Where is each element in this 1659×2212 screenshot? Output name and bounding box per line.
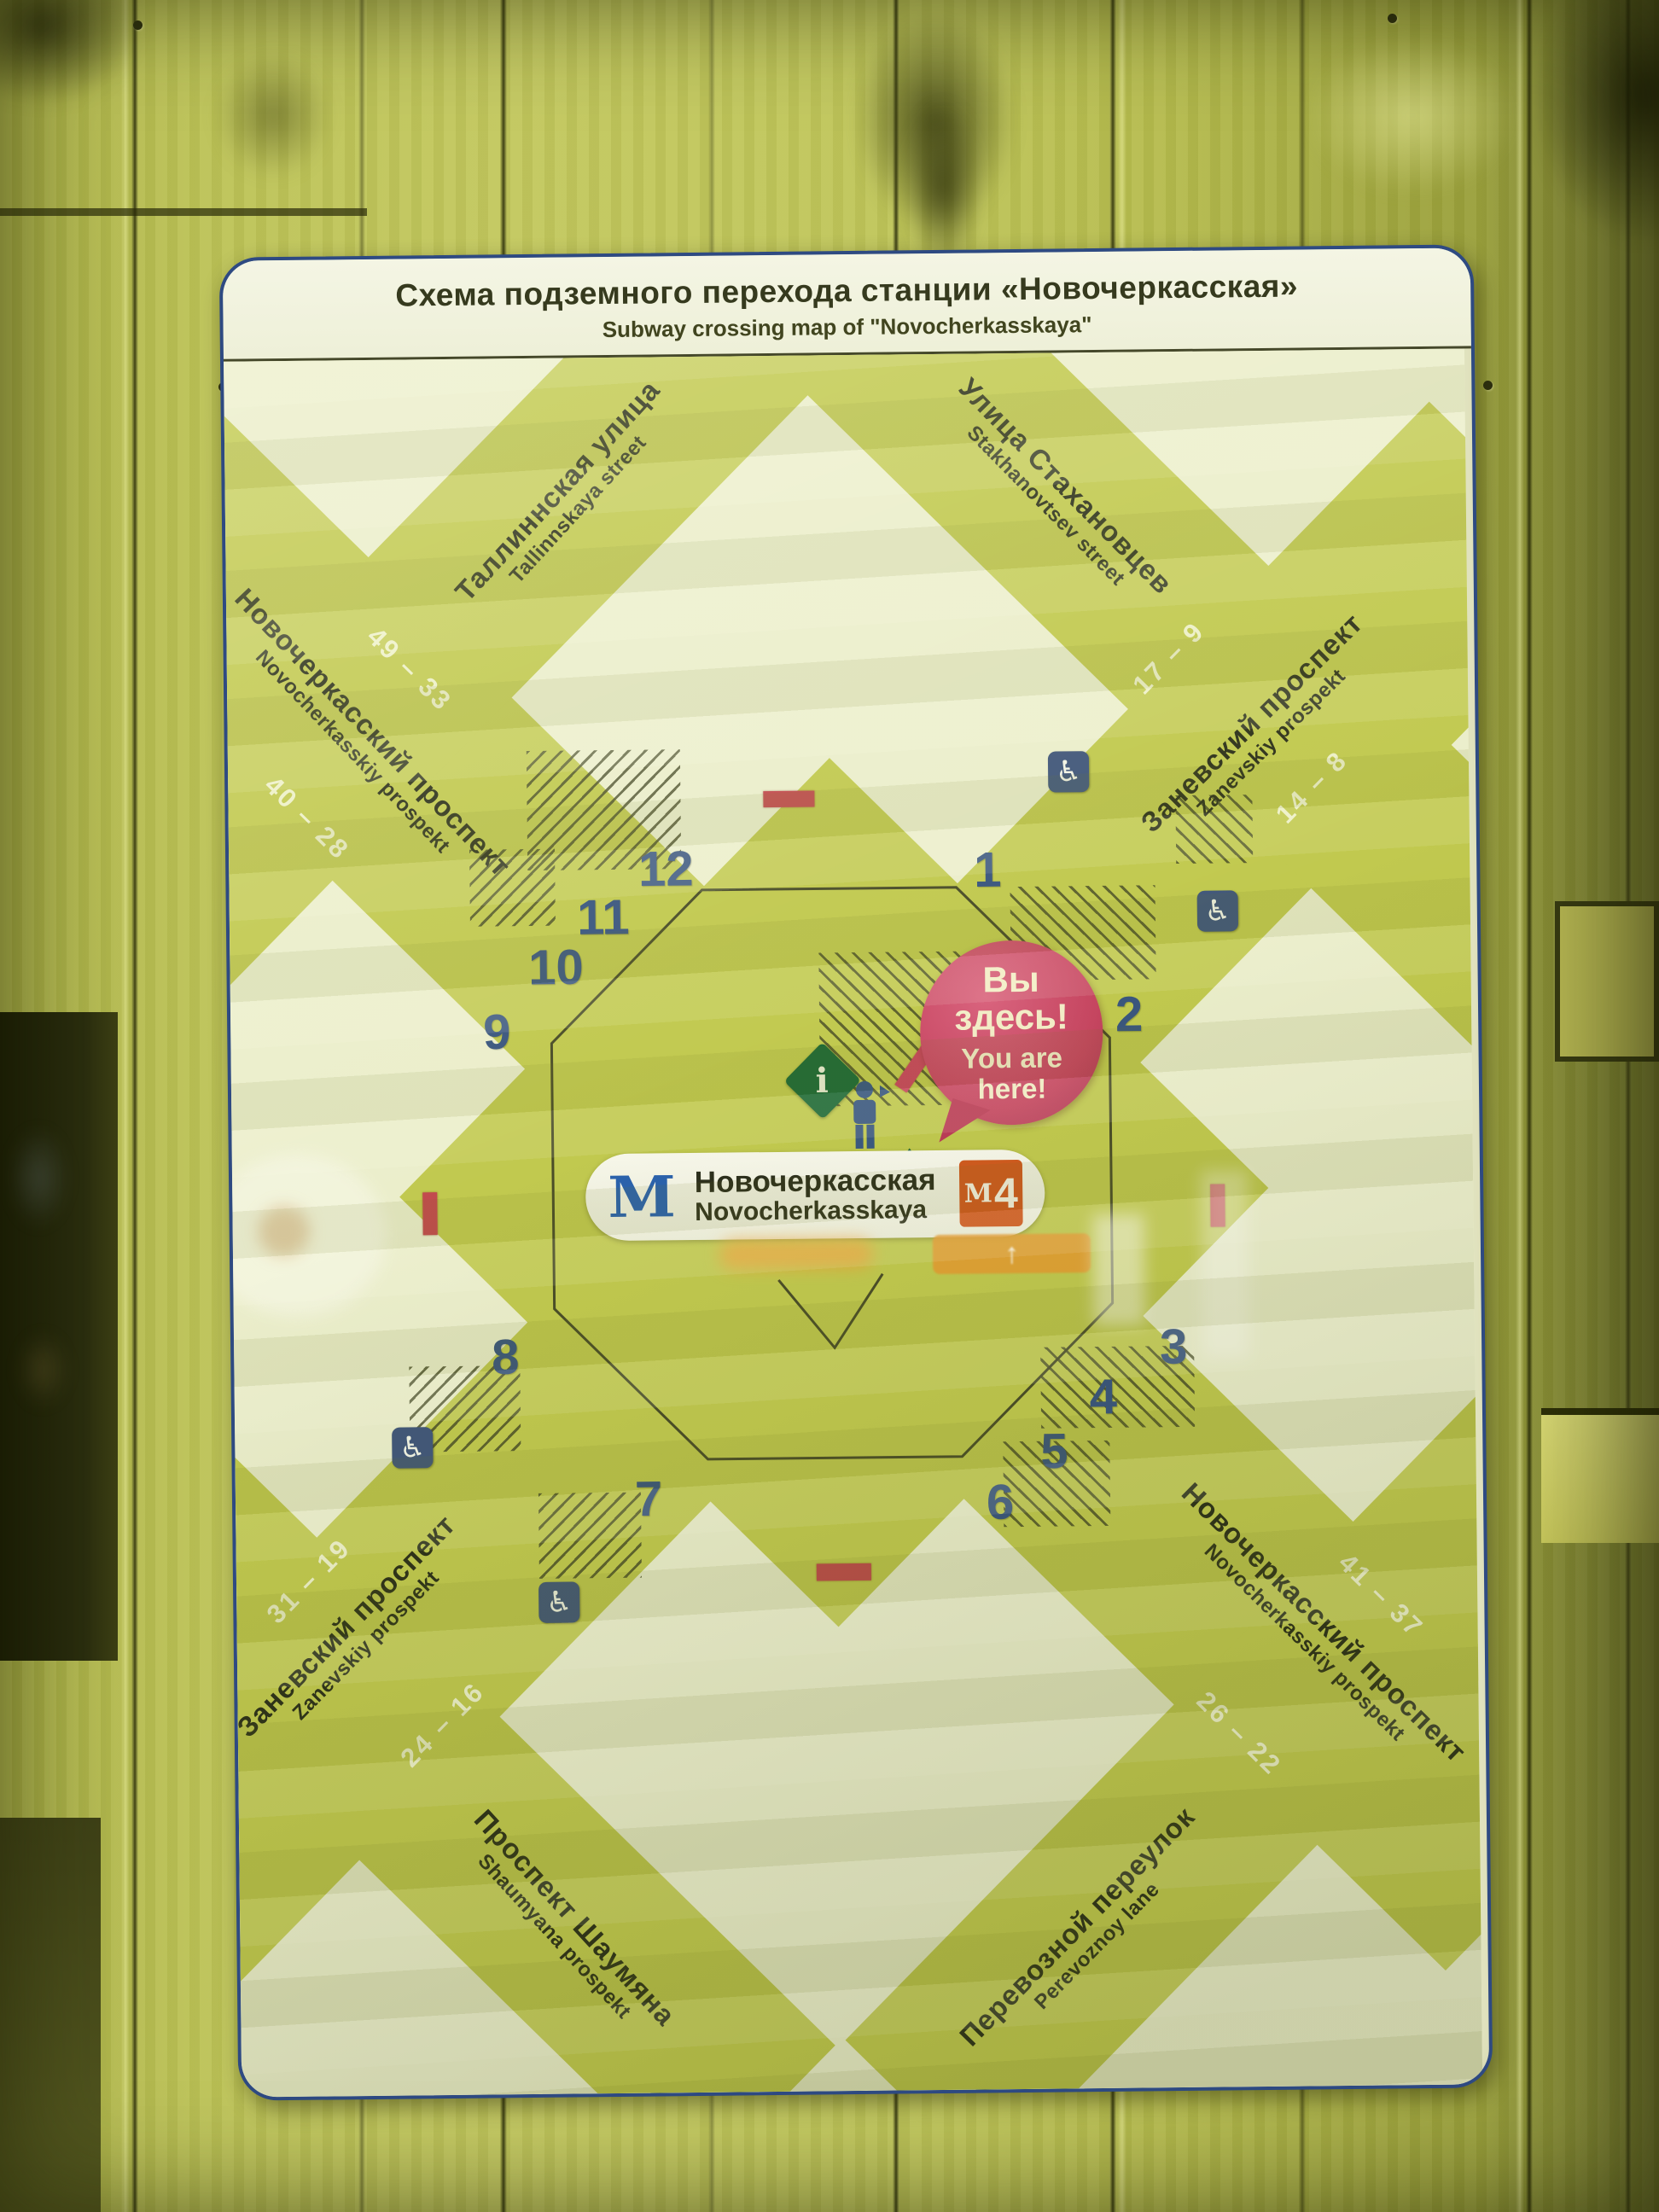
glare-white bbox=[1201, 1170, 1249, 1359]
exit-direction-strip: ↑ bbox=[933, 1233, 1091, 1274]
line-4-badge: М 4 bbox=[959, 1160, 1023, 1227]
doorway-glint bbox=[9, 1126, 68, 1229]
photo-of-subway-sign: Схема подземного перехода станции «Новоч… bbox=[0, 0, 1659, 2212]
wheelchair-icon: ♿ bbox=[392, 1427, 434, 1469]
you-are-here-en: here! bbox=[977, 1074, 1046, 1105]
info-glyph: i bbox=[816, 1061, 829, 1101]
exit-number-11: 11 bbox=[577, 888, 630, 946]
doorway-glint bbox=[17, 1331, 68, 1408]
screw bbox=[1483, 381, 1493, 390]
exit-number-8: 8 bbox=[492, 1329, 520, 1386]
station-names: Новочеркасская Novocherkasskaya bbox=[695, 1163, 960, 1226]
exit-number-2: 2 bbox=[1115, 986, 1144, 1043]
exit-number-7: 7 bbox=[635, 1470, 663, 1528]
glare-reflection bbox=[258, 1206, 310, 1258]
metro-logo: М bbox=[608, 1168, 676, 1225]
exit-number-5: 5 bbox=[1040, 1423, 1068, 1480]
you-are-here-ru: здесь! bbox=[954, 998, 1068, 1036]
wheelchair-glyph: ♿ bbox=[399, 1430, 426, 1464]
stairs-hatch bbox=[538, 1493, 642, 1579]
badge-metro-glyph: М bbox=[964, 1179, 993, 1208]
wheelchair-glyph: ♿ bbox=[1204, 894, 1231, 928]
horizontal-board-groove bbox=[0, 208, 367, 216]
wheelchair-icon: ♿ bbox=[1197, 890, 1239, 932]
person-icon bbox=[842, 1080, 891, 1153]
glare-orange bbox=[719, 1239, 873, 1270]
screw bbox=[1388, 14, 1397, 23]
wheelchair-icon: ♿ bbox=[1048, 751, 1090, 793]
you-are-here-bubble: Вы здесь! You are here! bbox=[919, 940, 1103, 1126]
you-are-here-ru: Вы bbox=[982, 961, 1039, 999]
dark-doorway bbox=[0, 1012, 118, 1661]
station-name-ru: Новочеркасская bbox=[695, 1163, 960, 1197]
crossing-dash bbox=[422, 1192, 438, 1235]
street-map-area: Таллиннская улица Tallinnskaya street Ул… bbox=[224, 348, 1482, 2097]
you-are-here-en: You are bbox=[961, 1042, 1062, 1074]
exit-number-4: 4 bbox=[1089, 1368, 1117, 1425]
screw bbox=[133, 20, 143, 30]
crossing-dash bbox=[763, 790, 814, 807]
wheelchair-glyph: ♿ bbox=[1056, 754, 1082, 789]
wheelchair-glyph: ♿ bbox=[546, 1586, 573, 1620]
badge-line-number: 4 bbox=[994, 1168, 1018, 1218]
right-wall-shading bbox=[1481, 0, 1659, 2212]
plank-gap bbox=[131, 0, 138, 2212]
exit-number-12: 12 bbox=[638, 840, 694, 898]
wall-stain bbox=[213, 51, 333, 179]
sign-header: Схема подземного перехода станции «Новоч… bbox=[223, 247, 1471, 361]
wall-stain bbox=[905, 102, 981, 273]
sign-title-russian: Схема подземного перехода станции «Новоч… bbox=[223, 266, 1470, 315]
exit-number-9: 9 bbox=[483, 1004, 511, 1061]
wheelchair-icon: ♿ bbox=[538, 1581, 580, 1623]
exit-number-6: 6 bbox=[987, 1474, 1015, 1531]
subway-crossing-map-sign: Схема подземного перехода станции «Новоч… bbox=[219, 244, 1493, 2100]
up-arrow-icon: ↑ bbox=[1004, 1237, 1019, 1271]
glare-white bbox=[1093, 1214, 1145, 1325]
station-name-en: Novocherkasskaya bbox=[695, 1195, 960, 1226]
exit-number-1: 1 bbox=[974, 841, 1002, 899]
plank-highlight bbox=[121, 0, 130, 2212]
lower-wall-shadow bbox=[0, 1818, 101, 2212]
exit-number-10: 10 bbox=[528, 939, 584, 997]
exit-number-3: 3 bbox=[1160, 1318, 1188, 1375]
station-name-plate: М Новочеркасская Novocherkasskaya М 4 bbox=[585, 1150, 1045, 1242]
crossing-dash bbox=[817, 1563, 871, 1581]
